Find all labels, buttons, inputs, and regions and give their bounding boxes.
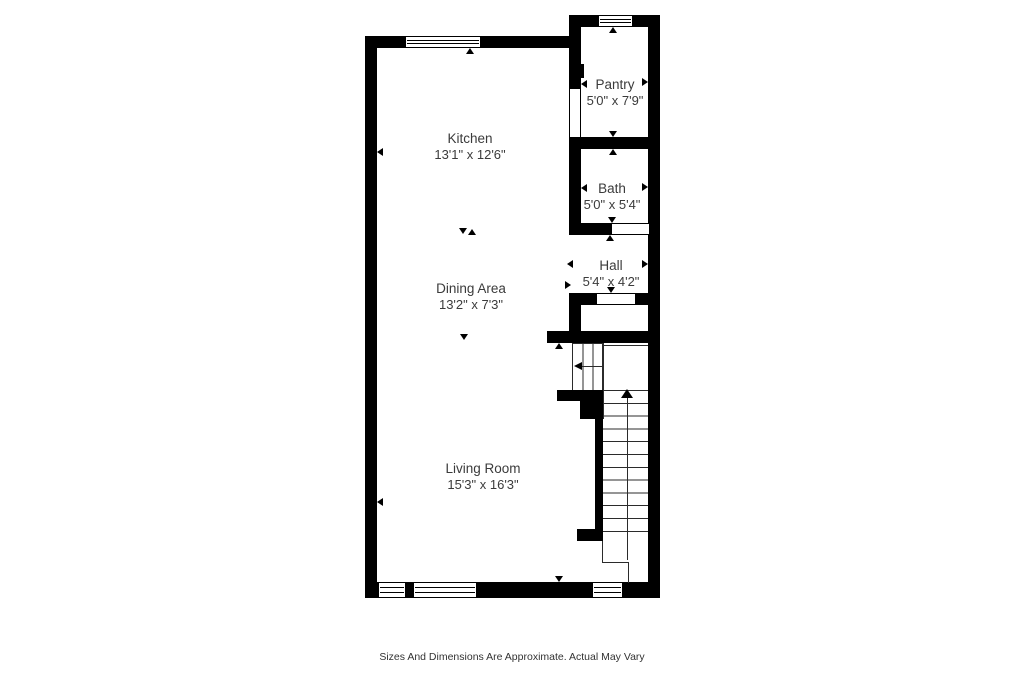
marker-dining-bottom-icon xyxy=(460,334,468,340)
window-glass-lines xyxy=(600,19,631,23)
marker-stairwell-wall-icon xyxy=(555,343,563,349)
room-dimensions: 13'2" x 7'3" xyxy=(436,297,506,313)
disclaimer-text: Sizes And Dimensions Are Approximate. Ac… xyxy=(0,651,1024,663)
stairs-up-arrow-icon xyxy=(621,389,633,398)
marker-kitchen-bottom-icon xyxy=(459,228,467,234)
wall-stair-flight-left xyxy=(595,419,603,533)
room-label-living: Living Room 15'3" x 16'3" xyxy=(445,461,520,493)
marker-dining-top-icon xyxy=(468,229,476,235)
wall-stair-bottom-stub xyxy=(577,529,603,541)
stairs-exit-arrow-icon xyxy=(574,362,582,370)
room-label-pantry: Pantry 5'0" x 7'9" xyxy=(587,77,644,109)
living-window-small xyxy=(378,582,406,598)
room-dimensions: 5'0" x 5'4" xyxy=(584,197,641,213)
wall-right xyxy=(648,15,660,598)
room-label-hall: Hall 5'4" x 4'2" xyxy=(583,258,640,290)
room-name: Living Room xyxy=(445,461,520,477)
room-name: Kitchen xyxy=(434,131,505,147)
stairwell-edge-line xyxy=(603,343,604,419)
room-dimensions: 5'0" x 7'9" xyxy=(587,93,644,109)
window-glass-lines xyxy=(415,587,475,592)
room-dimensions: 5'4" x 4'2" xyxy=(583,274,640,290)
stair-main-flight-treads xyxy=(603,390,648,532)
wall-left xyxy=(365,36,377,598)
room-label-bath: Bath 5'0" x 5'4" xyxy=(584,181,641,213)
marker-pantry-top-icon xyxy=(609,27,617,33)
pantry-window xyxy=(598,15,633,27)
marker-dining-right-icon xyxy=(565,281,571,289)
marker-hall-right-icon xyxy=(642,260,648,268)
room-name: Hall xyxy=(583,258,640,274)
wall-divider-pantry-bath xyxy=(569,137,660,149)
marker-hall-left-icon xyxy=(567,260,573,268)
marker-bath-top-icon xyxy=(609,149,617,155)
room-label-kitchen: Kitchen 13'1" x 12'6" xyxy=(434,131,505,163)
marker-living-bottom-icon xyxy=(555,576,563,582)
floor-plan: Kitchen 13'1" x 12'6" Pantry 5'0" x 7'9"… xyxy=(0,0,1024,682)
stair-landing-line-v2 xyxy=(628,562,629,583)
entry-window xyxy=(592,582,623,598)
room-label-dining: Dining Area 13'2" x 7'3" xyxy=(436,281,506,313)
marker-hall-top-icon xyxy=(606,235,614,241)
room-dimensions: 15'3" x 16'3" xyxy=(445,477,520,493)
marker-kitchen-left-icon xyxy=(377,148,383,156)
pantry-door-opening xyxy=(569,89,581,137)
kitchen-window xyxy=(405,36,481,48)
room-name: Bath xyxy=(584,181,641,197)
stair-landing-line-h xyxy=(602,562,628,563)
room-dimensions: 13'1" x 12'6" xyxy=(434,147,505,163)
stairs-exit-arrow-line xyxy=(580,366,603,367)
wall-hall-bottom-right xyxy=(635,293,648,305)
bath-door-opening xyxy=(612,223,649,235)
window-glass-lines xyxy=(407,40,479,44)
hall-door-opening xyxy=(597,293,635,305)
wall-stair-block xyxy=(580,401,603,419)
marker-bath-right-icon xyxy=(642,183,648,191)
wall-stairwell-top xyxy=(547,331,660,343)
wall-pantry-notch xyxy=(569,64,584,78)
living-window-large xyxy=(413,582,477,598)
marker-living-left-icon xyxy=(377,498,383,506)
marker-kitchen-top-icon xyxy=(466,48,474,54)
wall-bath-bottom xyxy=(569,223,612,235)
window-glass-lines xyxy=(380,587,404,592)
room-name: Dining Area xyxy=(436,281,506,297)
stair-stringer-line xyxy=(603,345,648,346)
marker-pantry-bottom-icon xyxy=(609,131,617,137)
wall-stair-mid xyxy=(557,390,603,401)
room-name: Pantry xyxy=(587,77,644,93)
stairs-up-arrow-line xyxy=(627,397,628,560)
marker-bath-bottom-icon xyxy=(608,217,616,223)
window-glass-lines xyxy=(594,587,621,592)
stair-landing-line-v1 xyxy=(602,541,603,562)
